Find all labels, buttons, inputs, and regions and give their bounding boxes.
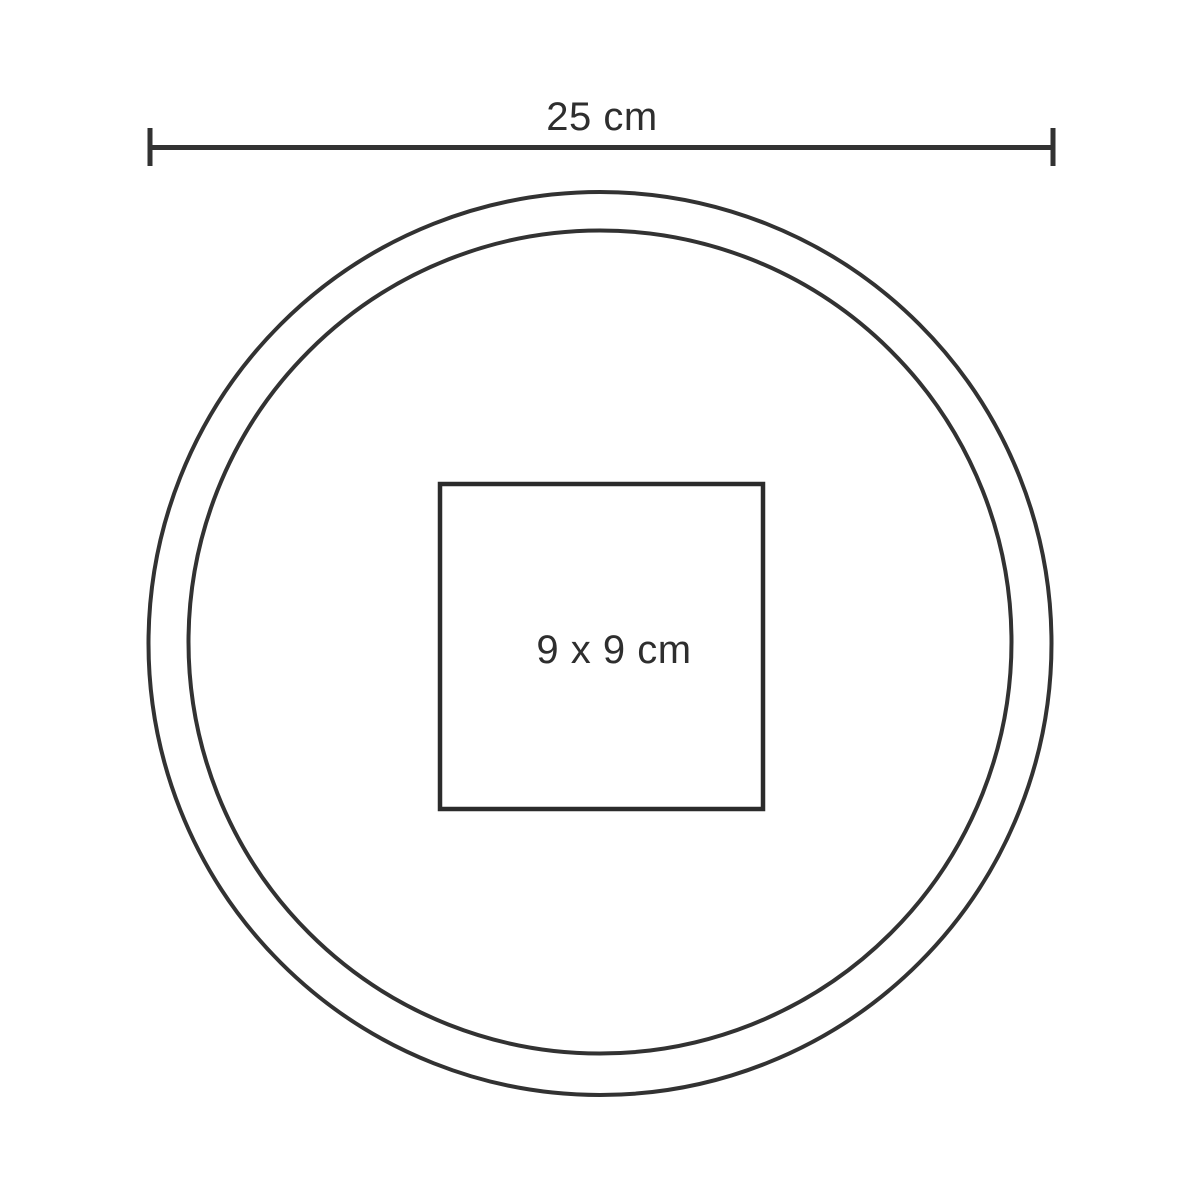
print-area-label: 9 x 9 cm <box>536 630 691 670</box>
diameter-dimension-label: 25 cm <box>546 97 657 137</box>
diagram-canvas <box>0 0 1200 1200</box>
dimension-diagram: 25 cm 9 x 9 cm <box>0 0 1200 1200</box>
